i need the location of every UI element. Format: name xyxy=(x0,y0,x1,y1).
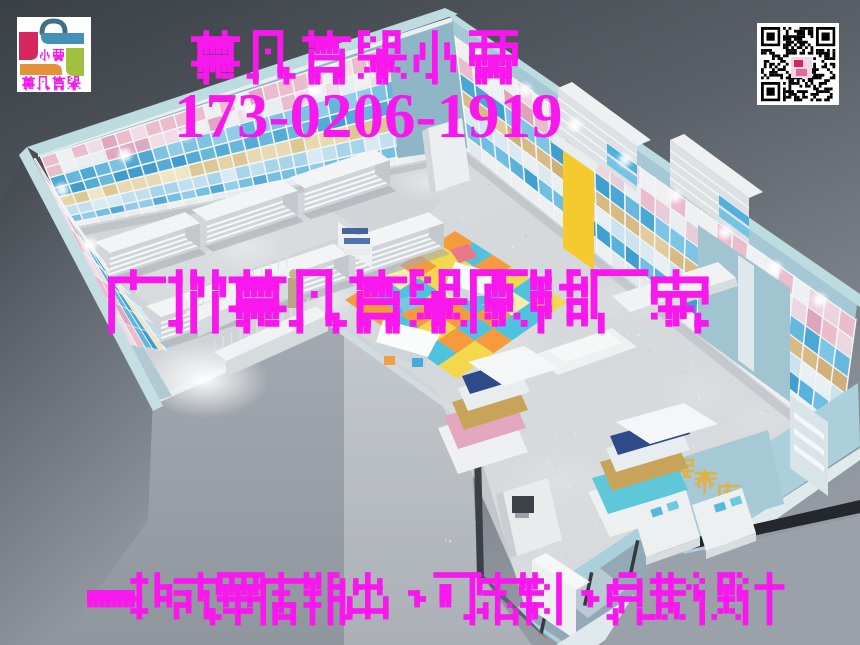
svg-text:173-0206-1919: 173-0206-1919 xyxy=(174,81,562,151)
